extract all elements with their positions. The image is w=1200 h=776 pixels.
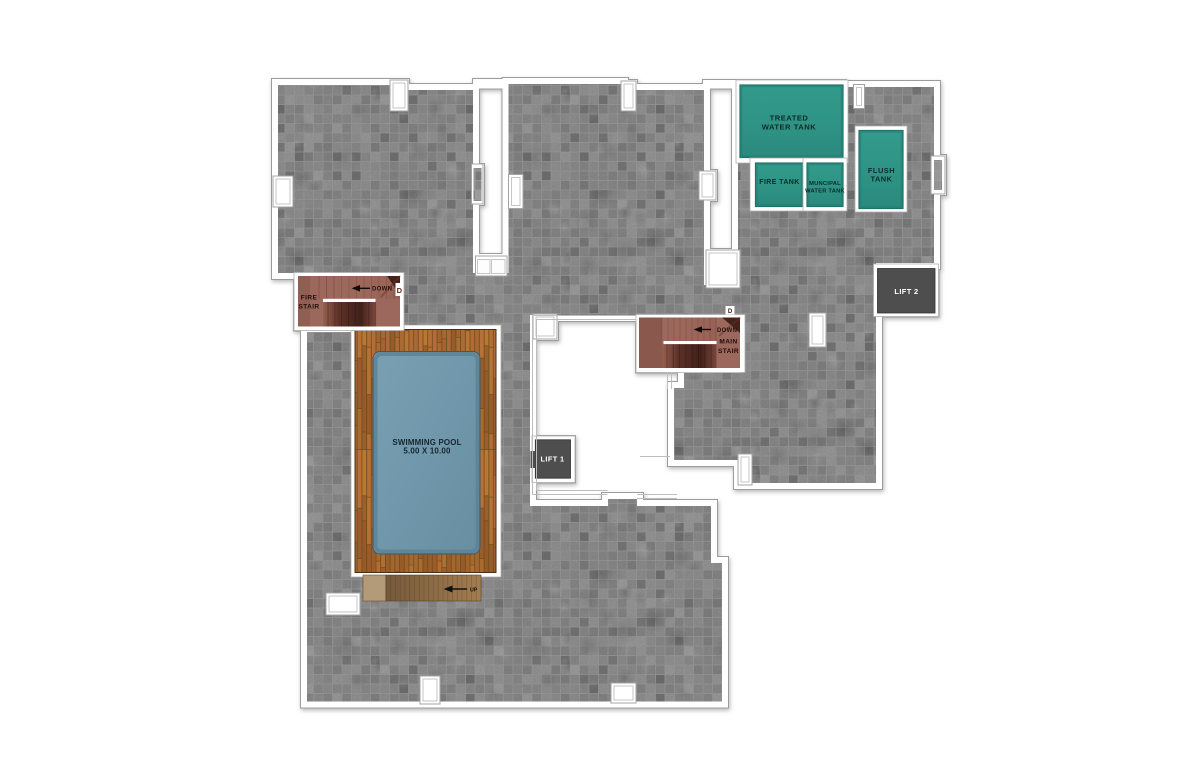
- svg-text:FIRE: FIRE: [301, 294, 318, 301]
- svg-text:TANK: TANK: [871, 175, 893, 184]
- svg-text:FLUSH: FLUSH: [868, 166, 895, 175]
- svg-text:5.00 X 10.00: 5.00 X 10.00: [403, 447, 451, 456]
- svg-text:MUNCIPAL: MUNCIPAL: [809, 181, 841, 187]
- svg-text:STAIR: STAIR: [718, 348, 739, 355]
- svg-text:FIRE TANK: FIRE TANK: [759, 179, 799, 186]
- svg-text:D: D: [397, 286, 403, 295]
- svg-text:WATER TANK: WATER TANK: [762, 123, 817, 132]
- svg-text:D: D: [728, 309, 733, 315]
- svg-text:LIFT 2: LIFT 2: [894, 287, 918, 296]
- svg-text:STAIR: STAIR: [298, 303, 319, 310]
- svg-text:UP: UP: [470, 588, 478, 594]
- svg-text:DOWN: DOWN: [372, 287, 392, 293]
- svg-text:TREATED: TREATED: [770, 114, 809, 123]
- svg-text:MAIN: MAIN: [719, 339, 737, 346]
- svg-text:WATER TANK: WATER TANK: [805, 189, 845, 195]
- svg-text:LIFT 1: LIFT 1: [541, 454, 565, 463]
- svg-text:DOWN: DOWN: [717, 328, 737, 334]
